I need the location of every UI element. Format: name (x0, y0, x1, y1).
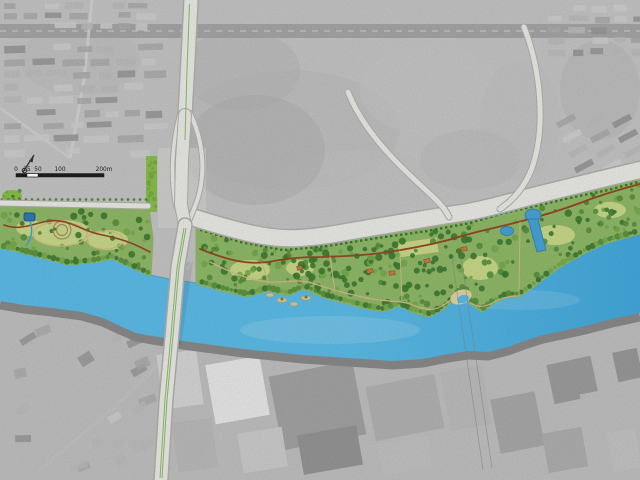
plan-svg: 0 25 50 100 200m (0, 0, 640, 480)
master-plan-map: 0 25 50 100 200m (0, 0, 640, 480)
scale-label-100: 100 (54, 167, 65, 173)
scale-label-0: 0 (14, 167, 18, 173)
scale-label-200m: 200m (96, 167, 113, 173)
photo-grain (0, 0, 640, 480)
scale-label-50: 50 (34, 167, 42, 173)
scale-bar: 0 25 50 100 200m (14, 167, 113, 177)
